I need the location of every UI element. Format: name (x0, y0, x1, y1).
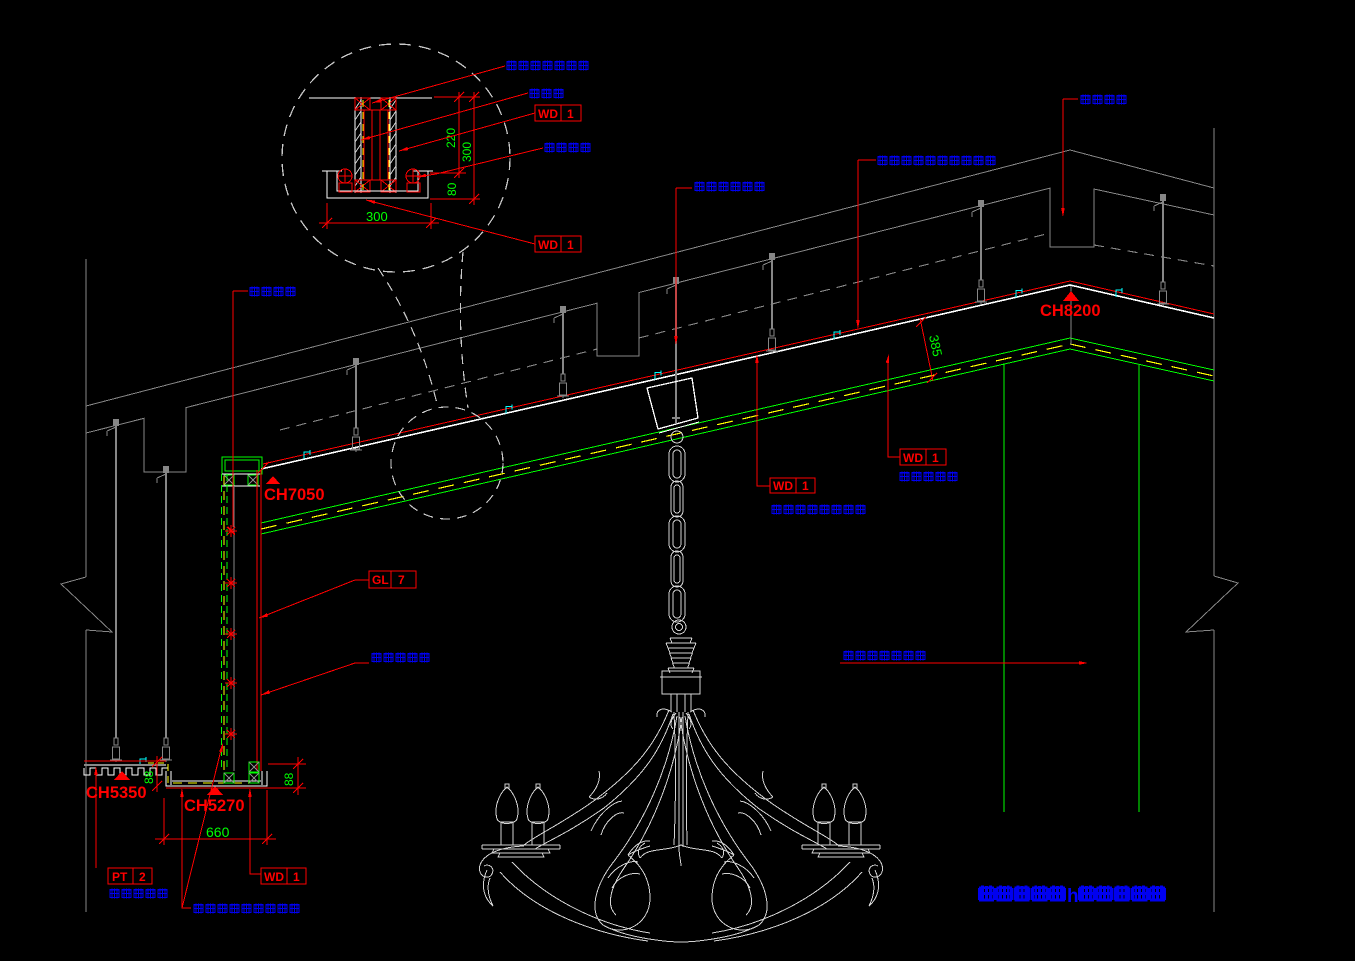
svg-text:WD: WD (264, 870, 284, 884)
svg-text:WD: WD (538, 107, 558, 121)
svg-text:1: 1 (293, 870, 300, 884)
svg-text:WD: WD (538, 238, 558, 252)
svg-text:CH8200: CH8200 (1040, 302, 1101, 320)
svg-text:7: 7 (398, 573, 405, 587)
svg-text:80: 80 (445, 182, 459, 196)
svg-text:WD: WD (903, 451, 923, 465)
svg-text:1: 1 (567, 238, 574, 252)
svg-text:88: 88 (282, 772, 296, 786)
svg-text:1: 1 (932, 451, 939, 465)
svg-text:h: h (1067, 886, 1079, 907)
svg-text:CH5270: CH5270 (184, 797, 245, 815)
svg-text:CH5350: CH5350 (86, 784, 147, 802)
svg-text:300: 300 (366, 209, 388, 224)
svg-text:660: 660 (206, 824, 230, 840)
svg-text:2: 2 (139, 870, 146, 884)
svg-text:88: 88 (142, 770, 156, 784)
svg-text:1: 1 (802, 479, 809, 493)
svg-text:PT: PT (112, 870, 128, 884)
svg-text:1: 1 (567, 107, 574, 121)
svg-text:WD: WD (773, 479, 793, 493)
svg-text:300: 300 (460, 142, 474, 162)
svg-text:CH7050: CH7050 (264, 486, 325, 504)
svg-text:GL: GL (372, 573, 389, 587)
